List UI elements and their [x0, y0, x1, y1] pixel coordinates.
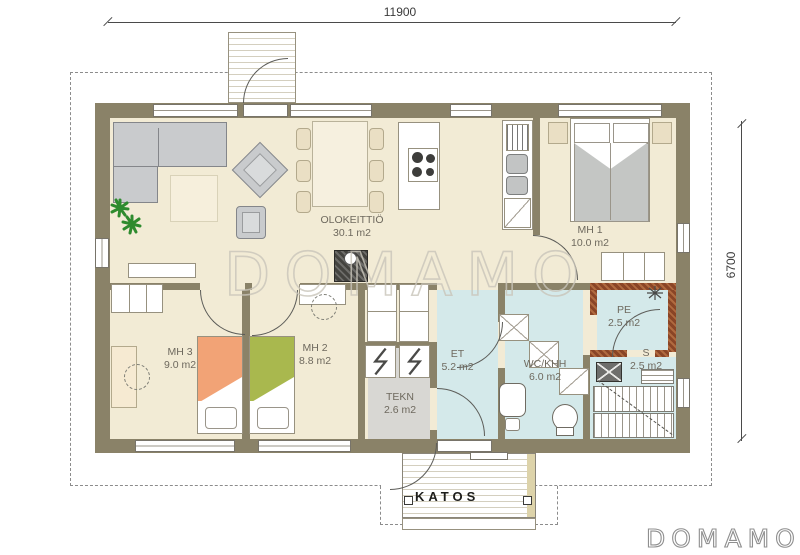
- window: [677, 378, 690, 408]
- washbasin-pedestal: [505, 418, 520, 431]
- room-name: MH 3: [135, 346, 225, 359]
- sink-basin: [506, 154, 528, 174]
- burner: [426, 168, 434, 176]
- burner: [412, 167, 422, 177]
- pillow: [205, 407, 237, 429]
- room-label-olokeittio: OLOKEITTIÖ 30.1 m2: [300, 214, 404, 240]
- rug: [170, 175, 218, 222]
- door-step: [470, 452, 508, 460]
- room-area: 2.6 m2: [362, 404, 438, 417]
- double-bed: [570, 118, 650, 222]
- room-name: MH 1: [545, 224, 635, 237]
- window: [95, 238, 109, 268]
- burner: [412, 152, 423, 163]
- dining-chair: [296, 160, 311, 182]
- sofa: [113, 122, 227, 167]
- terrace-post: [404, 496, 413, 505]
- window: [558, 104, 662, 117]
- dining-chair: [369, 160, 384, 182]
- sofa-seam: [158, 128, 159, 166]
- room-area: 2.5 m2: [616, 360, 676, 373]
- window: [290, 104, 372, 117]
- sauna-bench: [593, 386, 674, 412]
- window: [153, 104, 238, 117]
- terrace-post: [523, 496, 532, 505]
- terrace-door: [437, 440, 492, 452]
- window: [677, 223, 690, 253]
- shower-icon: [644, 283, 666, 303]
- washbasin: [499, 383, 526, 417]
- dining-chair: [296, 128, 311, 150]
- dining-chair: [296, 191, 311, 213]
- room-name: TEKN: [362, 391, 438, 404]
- fire-wall: [668, 290, 676, 352]
- fridge: [506, 124, 529, 151]
- room-area: 8.8 m2: [270, 355, 360, 368]
- room-area: 5.2 m2: [420, 361, 495, 374]
- room-name: S: [616, 347, 676, 360]
- burner: [426, 154, 435, 163]
- pillow: [257, 407, 289, 429]
- overhang-bump-left: [380, 486, 381, 525]
- toilet-tank: [556, 427, 574, 436]
- room-label-wc: WC/KHH 6.0 m2: [505, 358, 585, 384]
- room-name: WC/KHH: [505, 358, 585, 371]
- room-area: 2.5 m2: [594, 317, 654, 330]
- room-name: ET: [420, 348, 495, 361]
- wall: [533, 118, 540, 235]
- mh1-closet: [601, 252, 665, 281]
- room-label-pe: PE 2.5 m2: [594, 304, 654, 330]
- floor-plan: OLOKEITTIÖ 30.1 m2 MH 1 10.0 m2 MH 3 9.0…: [0, 0, 800, 555]
- overhang-bump-right: [557, 486, 558, 525]
- room-label-mh3: MH 3 9.0 m2: [135, 346, 225, 372]
- bed-center-line: [610, 143, 611, 220]
- dimension-line-right: [741, 121, 742, 441]
- dimension-line-top: [108, 22, 676, 23]
- wall: [430, 430, 437, 439]
- washer: [499, 314, 529, 341]
- dining-chair: [369, 128, 384, 150]
- dining-table: [312, 121, 368, 207]
- room-name: PE: [594, 304, 654, 317]
- deck-edge-strip: [527, 454, 535, 517]
- dimension-height-label: 6700: [724, 243, 738, 287]
- nightstand: [548, 122, 568, 144]
- armchair-seat: [242, 212, 260, 233]
- room-name: OLOKEITTIÖ: [300, 214, 404, 227]
- nightstand: [652, 122, 672, 144]
- watermark: DOMAMO: [224, 240, 593, 310]
- window: [135, 440, 235, 452]
- sink-basin: [506, 176, 528, 195]
- room-area: 30.1 m2: [300, 227, 404, 240]
- terrace-step: [402, 518, 536, 530]
- plant-icon: [110, 198, 146, 238]
- dimension-width-label: 11900: [360, 5, 440, 19]
- katos-label: KATOS: [415, 489, 479, 504]
- room-label-tekn: TEKN 2.6 m2: [362, 391, 438, 417]
- window: [450, 104, 492, 117]
- window: [258, 440, 351, 452]
- electrical-unit: [365, 345, 396, 378]
- room-label-mh2: MH 2 8.8 m2: [270, 342, 360, 368]
- room-label-s: S 2.5 m2: [616, 347, 676, 373]
- dishwasher: [504, 198, 531, 228]
- room-name: MH 2: [270, 342, 360, 355]
- mh3-wardrobe: [111, 284, 163, 313]
- entrance-door: [243, 104, 288, 117]
- pillow: [613, 123, 649, 143]
- dining-chair: [369, 191, 384, 213]
- sideboard: [128, 263, 196, 278]
- pillow: [574, 123, 610, 143]
- room-area: 6.0 m2: [505, 371, 585, 384]
- room-label-et: ET 5.2 m2: [420, 348, 495, 374]
- lightning-icon: [366, 346, 395, 377]
- room-area: 9.0 m2: [135, 359, 225, 372]
- domamo-logo: DOMAMO: [646, 524, 800, 553]
